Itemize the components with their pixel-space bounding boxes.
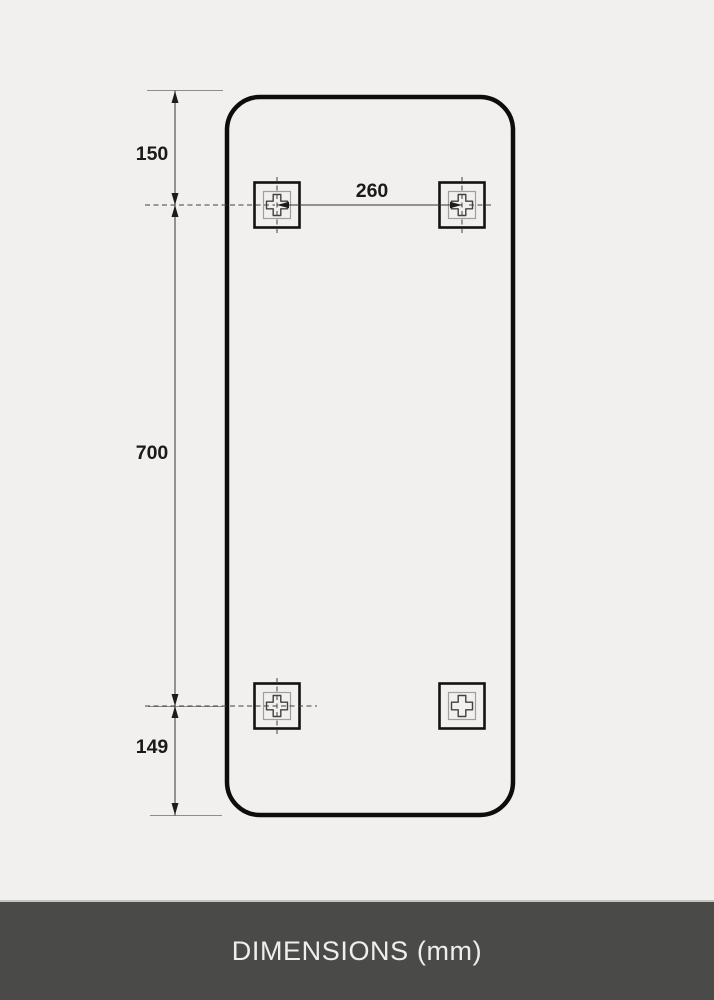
dimension-diagram-page: 150 260 700 149 DIMENSIONS (mm) bbox=[0, 0, 714, 1000]
dimension-diagram: 150 260 700 149 bbox=[0, 0, 714, 900]
dim-label-bottom-offset: 149 bbox=[136, 736, 169, 758]
footer-title: DIMENSIONS (mm) bbox=[232, 936, 482, 967]
footer-bar: DIMENSIONS (mm) bbox=[0, 900, 714, 1000]
bracket-bottom-right-icon bbox=[440, 684, 485, 729]
dim-label-top-offset: 150 bbox=[136, 143, 169, 165]
dim-label-hole-spacing-vertical: 700 bbox=[136, 442, 169, 464]
dim-label-hole-spacing-horizontal: 260 bbox=[356, 180, 389, 202]
centerlines bbox=[145, 177, 492, 734]
